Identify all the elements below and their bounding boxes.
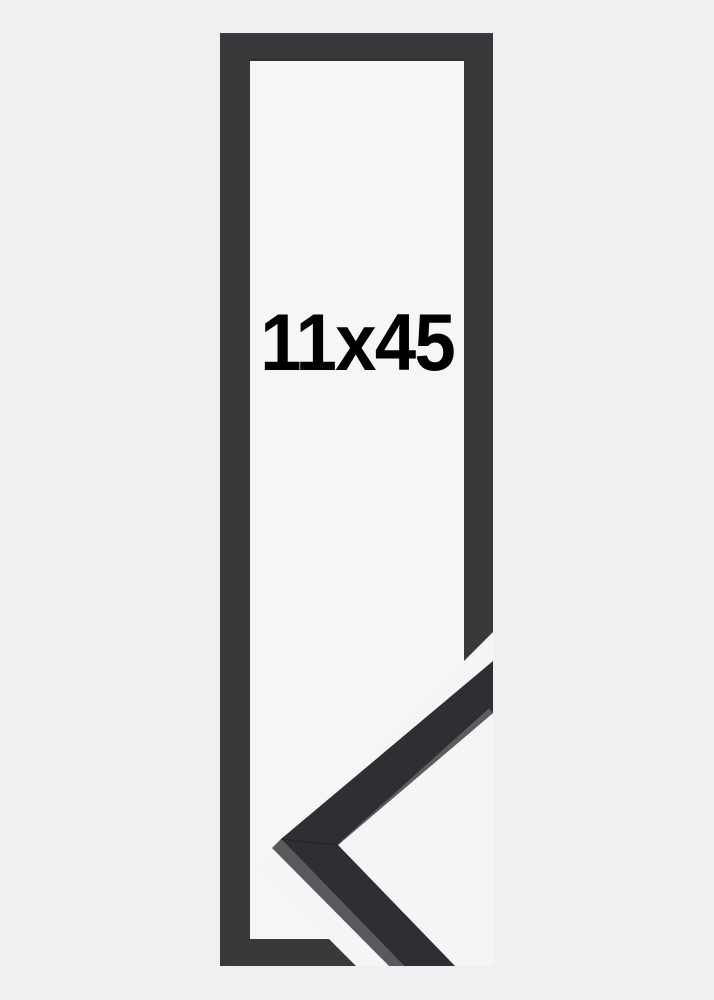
frame-inner-shadow: [250, 58, 464, 61]
frame-product-illustration: 11x45: [0, 0, 714, 1000]
product-photo: 11x45: [0, 0, 714, 1000]
frame-top-bevel: [220, 33, 493, 35]
size-label: 11x45: [260, 298, 454, 388]
